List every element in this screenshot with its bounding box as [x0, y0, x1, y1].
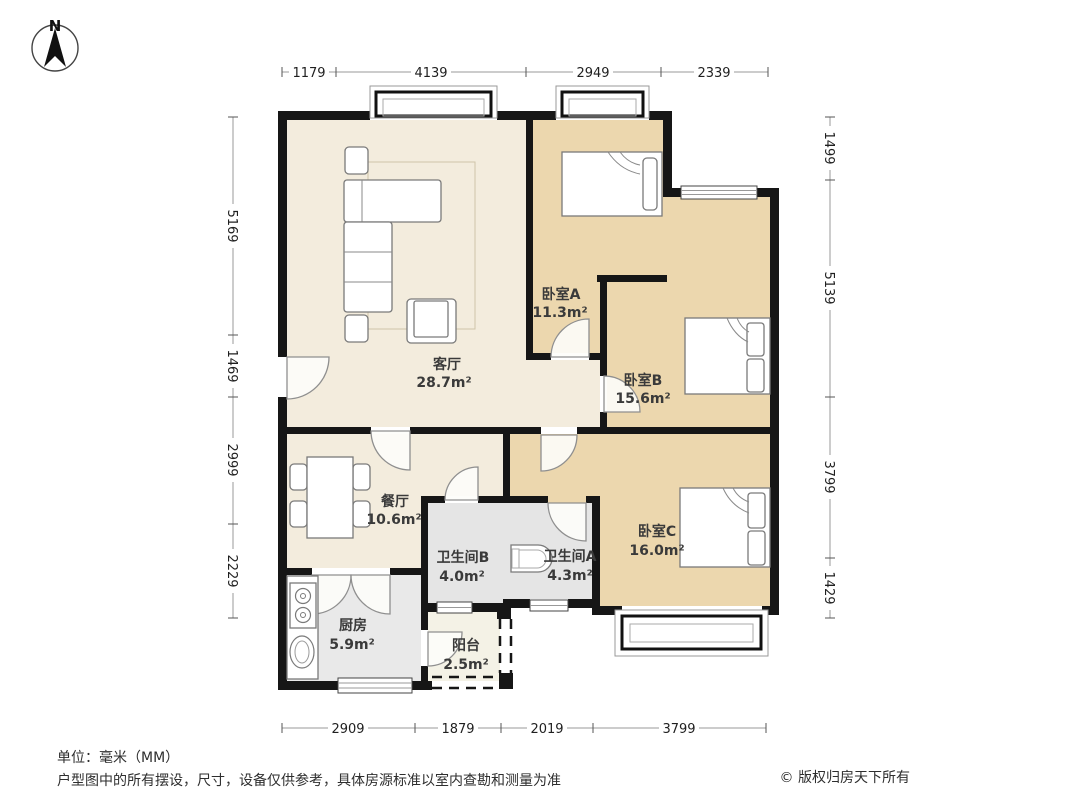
dim-top-4: 2339 — [697, 66, 730, 81]
bedroom-b-window — [681, 186, 757, 199]
copyright: © 版权归房天下所有 — [780, 769, 910, 786]
room-label-bedroom-a: 卧室A — [542, 286, 581, 303]
bath-a-window — [530, 600, 568, 611]
dim-right-1: 1499 — [821, 131, 836, 164]
dim-bottom-4: 3799 — [662, 722, 695, 737]
dim-right-3: 3799 — [821, 460, 836, 493]
dining-chair — [290, 464, 307, 490]
pillow — [748, 531, 765, 565]
dimension-right: 1499 5139 3799 1429 — [821, 117, 838, 618]
wall-segment — [597, 275, 667, 282]
wall-segment — [526, 353, 551, 360]
room-area-bath-b: 4.0m² — [439, 569, 485, 585]
side-table — [345, 315, 368, 342]
wall-segment — [390, 568, 421, 575]
wall-segment — [478, 496, 548, 503]
side-table — [345, 147, 368, 174]
pillow — [748, 493, 765, 528]
dining-chair — [353, 464, 370, 490]
bed-b — [685, 318, 770, 394]
bedroom-c-bay-window — [615, 610, 768, 656]
wall-segment — [663, 188, 681, 197]
bed-a — [562, 152, 662, 216]
dining-chair — [290, 501, 307, 527]
room-label-bedroom-b: 卧室B — [624, 372, 663, 389]
dim-right-4: 1429 — [821, 571, 836, 604]
wall-segment — [577, 427, 779, 434]
pillow — [747, 359, 764, 392]
floorplan-canvas: N — [0, 0, 1066, 800]
room-area-bedroom-c: 16.0m² — [629, 543, 684, 559]
armchair — [407, 299, 456, 343]
room-label-dining: 餐厅 — [380, 493, 409, 510]
wall-segment — [410, 427, 541, 434]
wall-segment — [503, 430, 510, 503]
floorplan-page: N — [0, 0, 1066, 800]
room-area-kitchen: 5.9m² — [329, 637, 375, 653]
room-label-balcony: 阳台 — [452, 637, 480, 654]
unit-note: 单位：毫米（MM） — [57, 749, 179, 766]
room-label-bedroom-c: 卧室C — [638, 523, 676, 540]
dim-left-3: 2999 — [224, 443, 239, 476]
bedroom-a-window — [556, 86, 649, 118]
room-area-bath-a: 4.3m² — [547, 568, 593, 584]
room-area-balcony: 2.5m² — [443, 657, 489, 673]
wall-segment — [770, 188, 779, 615]
wall-segment — [278, 111, 370, 120]
wall-segment — [278, 681, 340, 690]
wall-segment — [663, 111, 672, 197]
room-label-bath-a: 卫生间A — [544, 548, 597, 565]
bath-b-window — [437, 602, 472, 613]
dim-bottom-3: 2019 — [530, 722, 563, 737]
dim-right-2: 5139 — [821, 271, 836, 304]
kitchen-window — [338, 678, 412, 693]
compass-north-label: N — [49, 17, 62, 35]
room-label-kitchen: 厨房 — [339, 617, 367, 634]
disclaimer: 户型图中的所有摆设，尺寸，设备仅供参考，具体房源标准以室内查勘和测量为准 — [57, 772, 561, 789]
room-label-living: 客厅 — [432, 356, 461, 373]
room-area-bedroom-b: 15.6m² — [615, 391, 670, 407]
balcony-post — [499, 673, 513, 689]
dim-left-4: 2229 — [224, 554, 239, 587]
wall-segment — [421, 666, 428, 690]
pillow — [643, 158, 657, 210]
wall-segment — [278, 568, 312, 575]
dimension-bottom: 2909 1879 2019 3799 — [282, 720, 766, 737]
dim-top-3: 2949 — [576, 66, 609, 81]
room-area-living: 28.7m² — [416, 375, 471, 391]
dim-left-2: 1469 — [224, 349, 239, 382]
pillow — [747, 323, 764, 356]
footer: 单位：毫米（MM） 户型图中的所有摆设，尺寸，设备仅供参考，具体房源标准以室内查… — [57, 749, 910, 789]
dim-top-1: 1179 — [292, 66, 325, 81]
room-label-bath-b: 卫生间B — [437, 549, 490, 566]
wall-segment — [421, 603, 437, 612]
stove — [290, 583, 316, 628]
wall-segment — [278, 111, 287, 357]
wall-segment — [472, 603, 503, 612]
dimension-top: 1179 4139 2949 2339 — [282, 64, 768, 81]
living-window — [370, 86, 497, 118]
bed-c — [680, 488, 770, 567]
wall-segment — [278, 427, 371, 434]
wall-segment — [278, 397, 287, 690]
dimension-left: 5169 1469 2999 2229 — [224, 117, 241, 618]
tub-faucet — [512, 549, 519, 568]
kitchen-counter — [287, 576, 318, 679]
compass: N — [32, 17, 78, 71]
dim-bottom-1: 2909 — [331, 722, 364, 737]
wall-segment — [600, 275, 607, 376]
room-area-bedroom-a: 11.3m² — [532, 305, 587, 321]
room-area-dining: 10.6m² — [366, 512, 421, 528]
dim-left-1: 5169 — [224, 209, 239, 242]
dim-bottom-2: 1879 — [441, 722, 474, 737]
dim-top-2: 4139 — [414, 66, 447, 81]
